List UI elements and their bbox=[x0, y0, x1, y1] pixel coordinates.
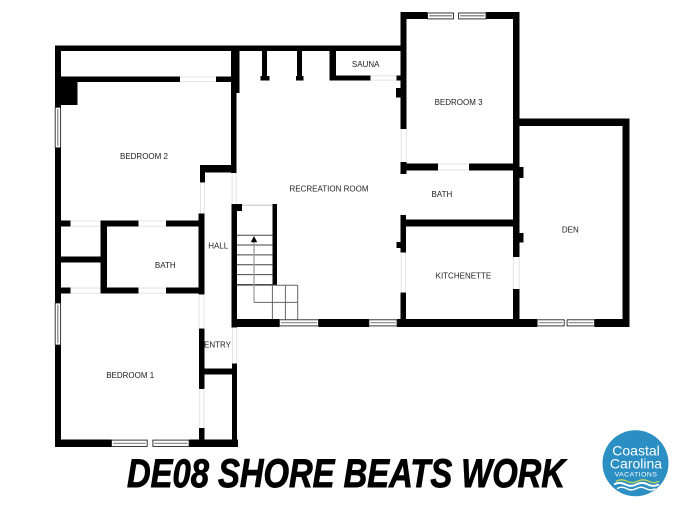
svg-text:Carolina: Carolina bbox=[610, 455, 662, 471]
svg-text:BATH: BATH bbox=[155, 261, 176, 270]
svg-text:KITCHENETTE: KITCHENETTE bbox=[436, 272, 492, 281]
svg-text:BEDROOM 3: BEDROOM 3 bbox=[435, 98, 484, 107]
svg-text:BEDROOM 1: BEDROOM 1 bbox=[106, 371, 155, 380]
svg-text:BEDROOM 2: BEDROOM 2 bbox=[120, 152, 169, 161]
svg-text:ENTRY: ENTRY bbox=[204, 340, 232, 349]
svg-text:VACATIONS: VACATIONS bbox=[615, 472, 658, 479]
svg-text:DEN: DEN bbox=[562, 226, 579, 235]
svg-text:DE08 SHORE BEATS WORK: DE08 SHORE BEATS WORK bbox=[127, 452, 568, 496]
svg-text:BATH: BATH bbox=[432, 190, 453, 199]
svg-text:RECREATION ROOM: RECREATION ROOM bbox=[290, 185, 369, 194]
svg-text:HALL: HALL bbox=[208, 241, 229, 250]
svg-text:SAUNA: SAUNA bbox=[352, 60, 380, 69]
